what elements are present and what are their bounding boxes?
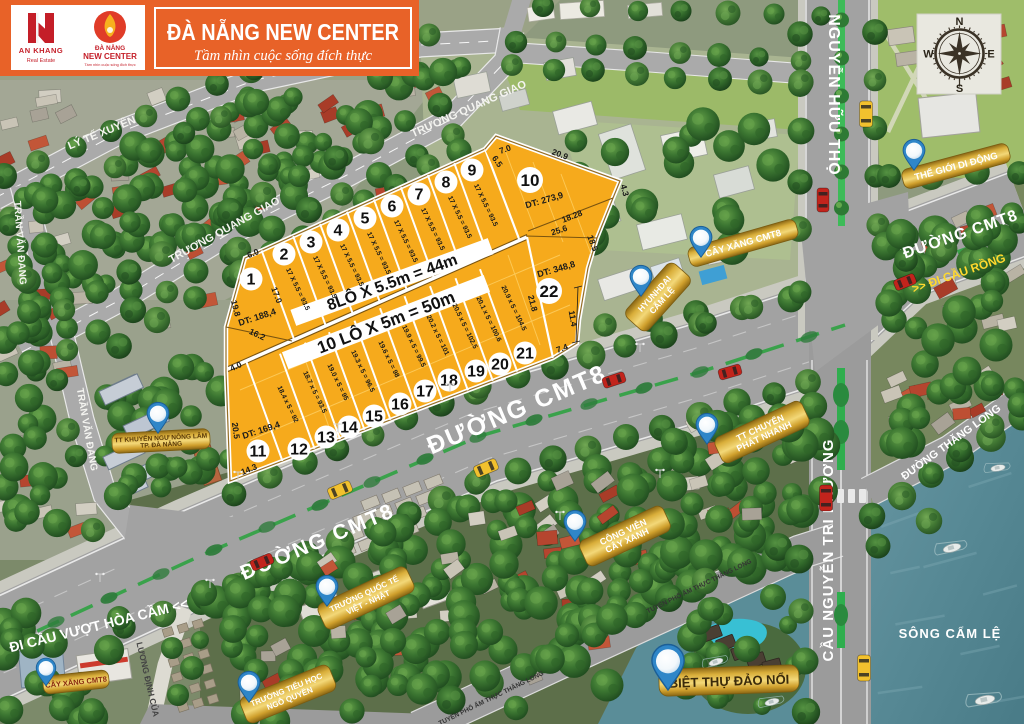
svg-text:14: 14: [340, 420, 358, 437]
svg-text:Tầm nhìn cuộc sống đích thực: Tầm nhìn cuộc sống đích thực: [194, 48, 372, 64]
svg-text:E: E: [987, 49, 994, 61]
svg-text:10: 10: [521, 171, 540, 190]
svg-text:AN KHANG: AN KHANG: [19, 46, 63, 55]
svg-text:18: 18: [440, 373, 458, 390]
svg-text:17: 17: [416, 384, 434, 401]
svg-text:ĐÀ NẴNG: ĐÀ NẴNG: [95, 43, 125, 52]
svg-text:19: 19: [467, 364, 485, 381]
svg-text:9: 9: [468, 163, 477, 180]
svg-text:Tầm nhìn cuộc sống đích thực: Tầm nhìn cuộc sống đích thực: [84, 63, 135, 67]
svg-text:SÔNG CẨM LỆ: SÔNG CẨM LỆ: [899, 626, 1002, 641]
svg-text:4: 4: [334, 223, 343, 240]
svg-text:CẦU NGUYỄN TRI PHƯƠNG: CẦU NGUYỄN TRI PHƯƠNG: [820, 439, 837, 662]
svg-text:15: 15: [365, 409, 383, 426]
svg-text:12: 12: [290, 442, 308, 459]
svg-text:6: 6: [388, 199, 397, 216]
svg-text:16: 16: [391, 397, 409, 414]
svg-text:N: N: [956, 16, 964, 28]
svg-text:7: 7: [415, 187, 424, 204]
svg-text:20: 20: [491, 357, 509, 374]
svg-text:ĐÀ NẴNG NEW CENTER: ĐÀ NẴNG NEW CENTER: [167, 18, 399, 45]
svg-text:NGUYỄN HỮU THỌ: NGUYỄN HỮU THỌ: [825, 14, 845, 176]
svg-text:3: 3: [307, 235, 316, 252]
svg-text:Real Estate: Real Estate: [27, 58, 55, 64]
svg-text:21: 21: [516, 346, 534, 363]
svg-text:8: 8: [442, 175, 451, 192]
svg-text:S: S: [956, 83, 963, 95]
svg-text:13: 13: [317, 430, 335, 447]
svg-text:5: 5: [361, 211, 370, 228]
svg-text:NEW CENTER: NEW CENTER: [83, 52, 137, 61]
svg-text:2: 2: [280, 247, 289, 264]
svg-text:W: W: [923, 49, 934, 61]
svg-text:22: 22: [540, 282, 559, 301]
svg-text:1: 1: [247, 272, 256, 289]
svg-text:11: 11: [250, 444, 267, 461]
